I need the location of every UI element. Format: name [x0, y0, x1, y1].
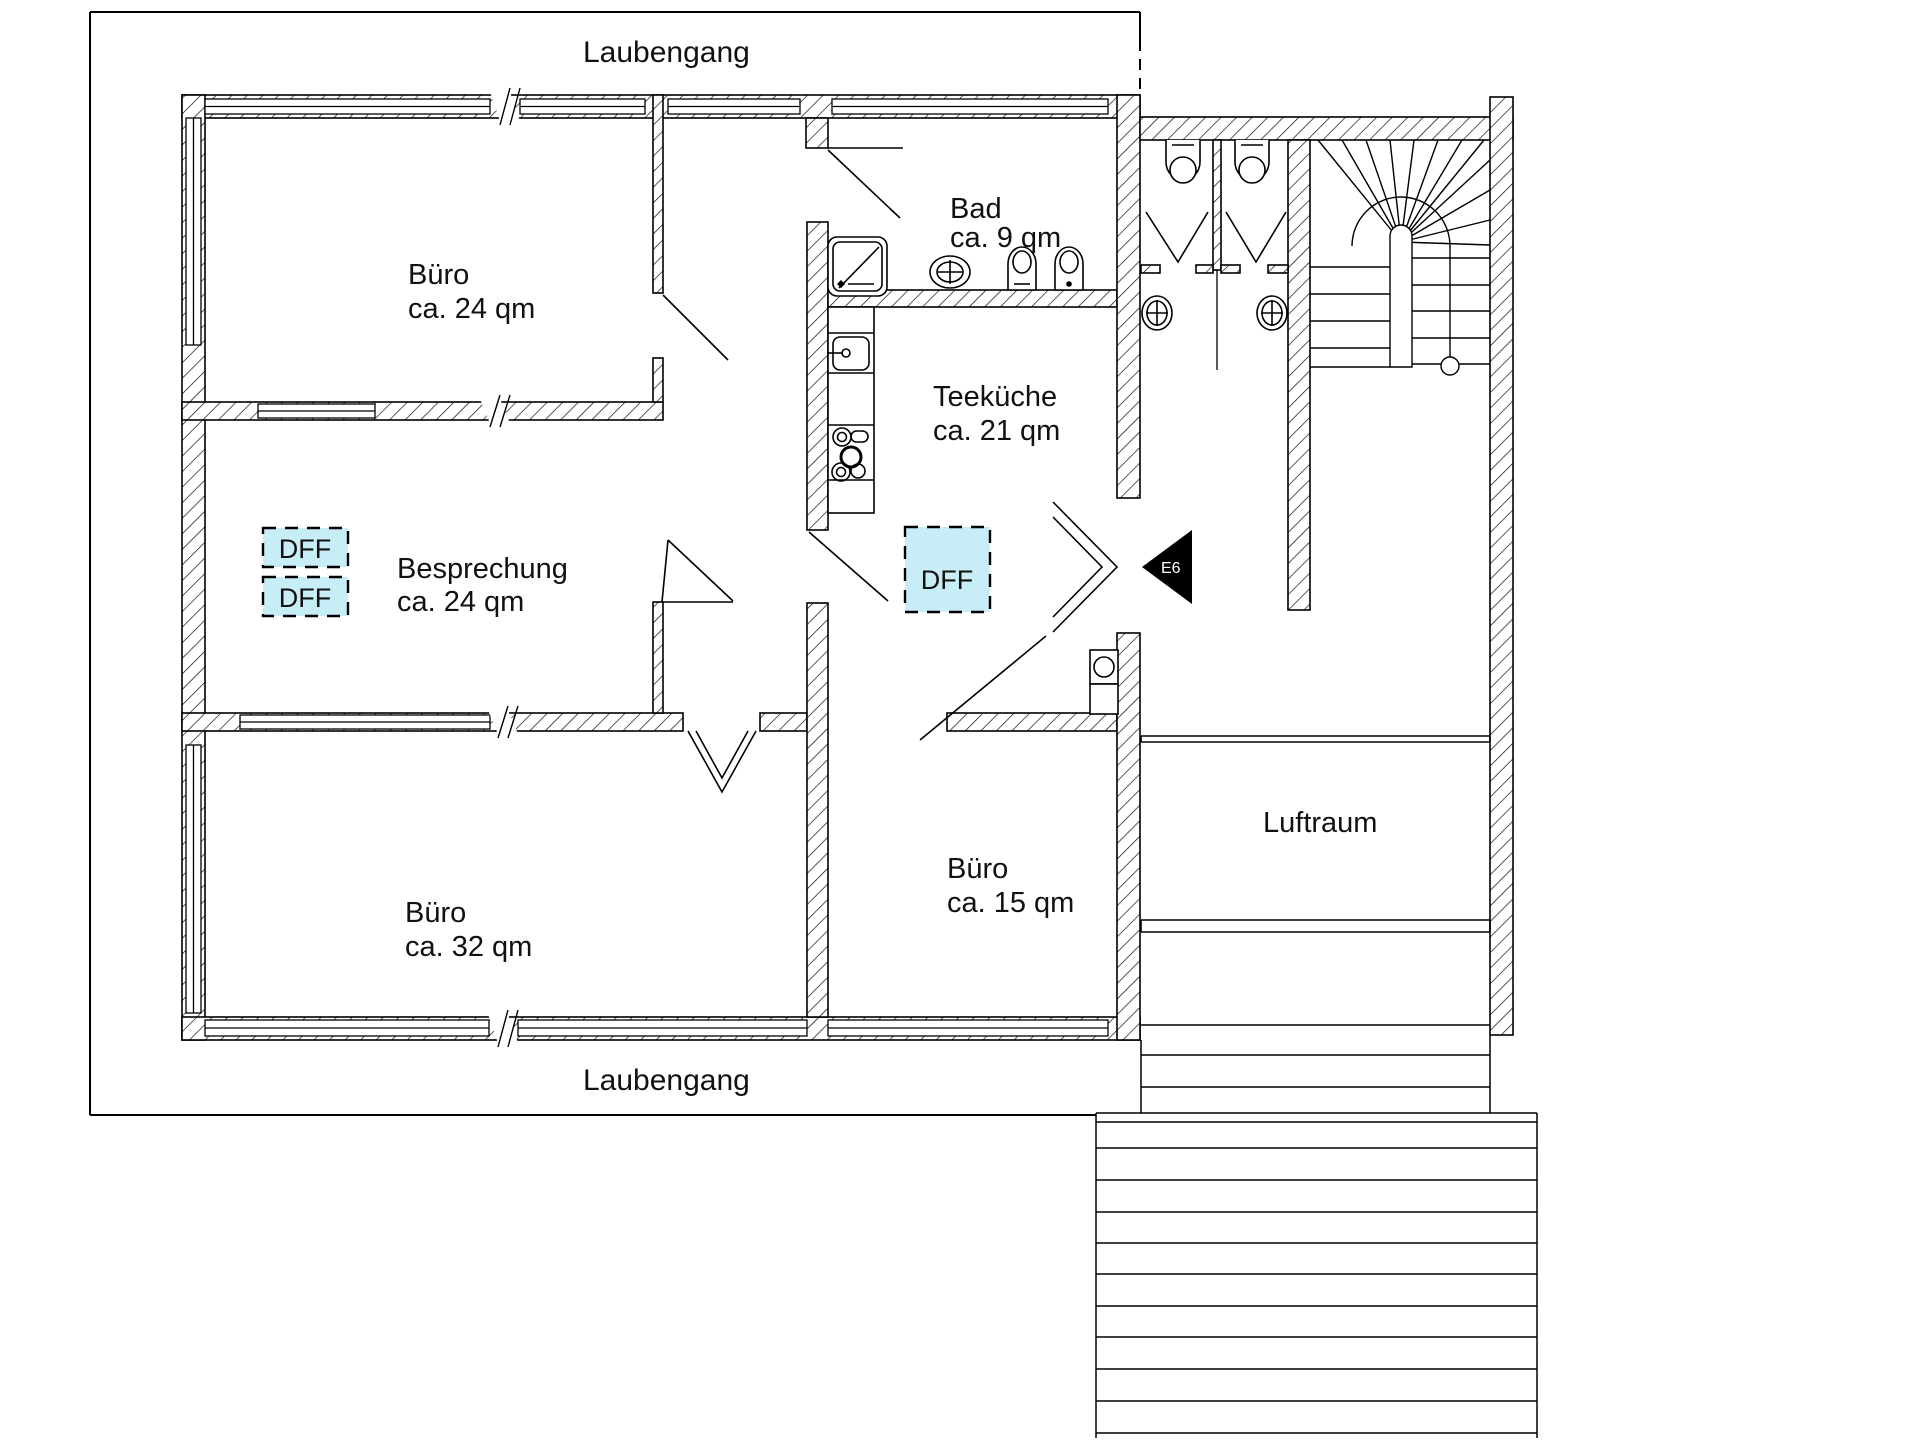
- wall-right-section-top: [1140, 117, 1513, 140]
- label-laubengang-bottom: Laubengang: [583, 1064, 750, 1097]
- wall-vestibule-stub: [760, 713, 807, 731]
- svg-text:Bad: Bad: [950, 193, 1002, 225]
- wall-stall-front-1: [1141, 265, 1160, 273]
- wall-buero24-besprechung: [182, 402, 663, 420]
- svg-text:ca. 24 qm: ca. 24 qm: [408, 293, 535, 325]
- stair-spine-wall: [1390, 225, 1412, 367]
- dff-marker-teekueche: DFF: [905, 527, 990, 612]
- shower-icon: [828, 237, 887, 296]
- wall-kitchen-west: [807, 222, 828, 530]
- svg-text:ca. 32 qm: ca. 32 qm: [405, 931, 532, 963]
- svg-text:ca. 21 qm: ca. 21 qm: [933, 415, 1060, 447]
- kitchen-counter: [828, 307, 874, 513]
- svg-text:ca. 9 qm: ca. 9 qm: [950, 222, 1061, 254]
- wall-wc-stair: [1288, 140, 1310, 610]
- label-luftraum: Luftraum: [1263, 807, 1377, 839]
- wall-entry-pier: [806, 118, 828, 148]
- svg-text:Büro: Büro: [947, 853, 1008, 885]
- wall-stall-front-2: [1196, 265, 1213, 273]
- svg-text:Teeküche: Teeküche: [933, 381, 1057, 413]
- svg-text:Büro: Büro: [408, 259, 469, 291]
- wall-east-lower: [1117, 633, 1140, 1040]
- wall-buero24-east-lower: [653, 358, 663, 402]
- wall-wc-partition: [1213, 140, 1221, 270]
- svg-text:ca. 15 qm: ca. 15 qm: [947, 887, 1074, 919]
- dff-label: DFF: [279, 583, 331, 613]
- exit-marker-label: E6: [1161, 560, 1181, 577]
- wall-stall-front-4: [1268, 265, 1288, 273]
- wc-toilet-icon-2: [1235, 140, 1269, 183]
- wall-vestibule-west: [653, 602, 663, 713]
- wc-sink-icon-1: [1142, 296, 1172, 330]
- label-laubengang-top: Laubengang: [583, 36, 750, 69]
- dff-marker-besprechung-1: DFF: [263, 528, 348, 567]
- washbasin-icon: [930, 256, 970, 288]
- svg-text:Büro: Büro: [405, 897, 466, 929]
- window-band-bottom: [205, 1020, 1108, 1036]
- boiler-unit: [1090, 650, 1118, 714]
- wall-buero32-buero15: [807, 603, 828, 1017]
- dff-marker-besprechung-2: DFF: [263, 577, 348, 616]
- wall-buero24-east-upper: [653, 95, 663, 293]
- dff-label: DFF: [921, 565, 973, 595]
- svg-text:ca. 24 qm: ca. 24 qm: [397, 586, 524, 618]
- wc-sink-icon-2: [1257, 296, 1287, 330]
- window-interior-2: [240, 715, 490, 729]
- wall-right-outer: [1490, 97, 1513, 1035]
- svg-text:Besprechung: Besprechung: [397, 553, 568, 585]
- wall-east-upper: [1117, 95, 1140, 498]
- dff-label: DFF: [279, 534, 331, 564]
- floor-plan-canvas: E6: [0, 0, 1920, 1440]
- wc-toilet-icon-1: [1166, 140, 1200, 183]
- wall-buero15-north: [947, 713, 1117, 731]
- wall-stall-front-3: [1221, 265, 1240, 273]
- window-interior-1: [258, 404, 375, 418]
